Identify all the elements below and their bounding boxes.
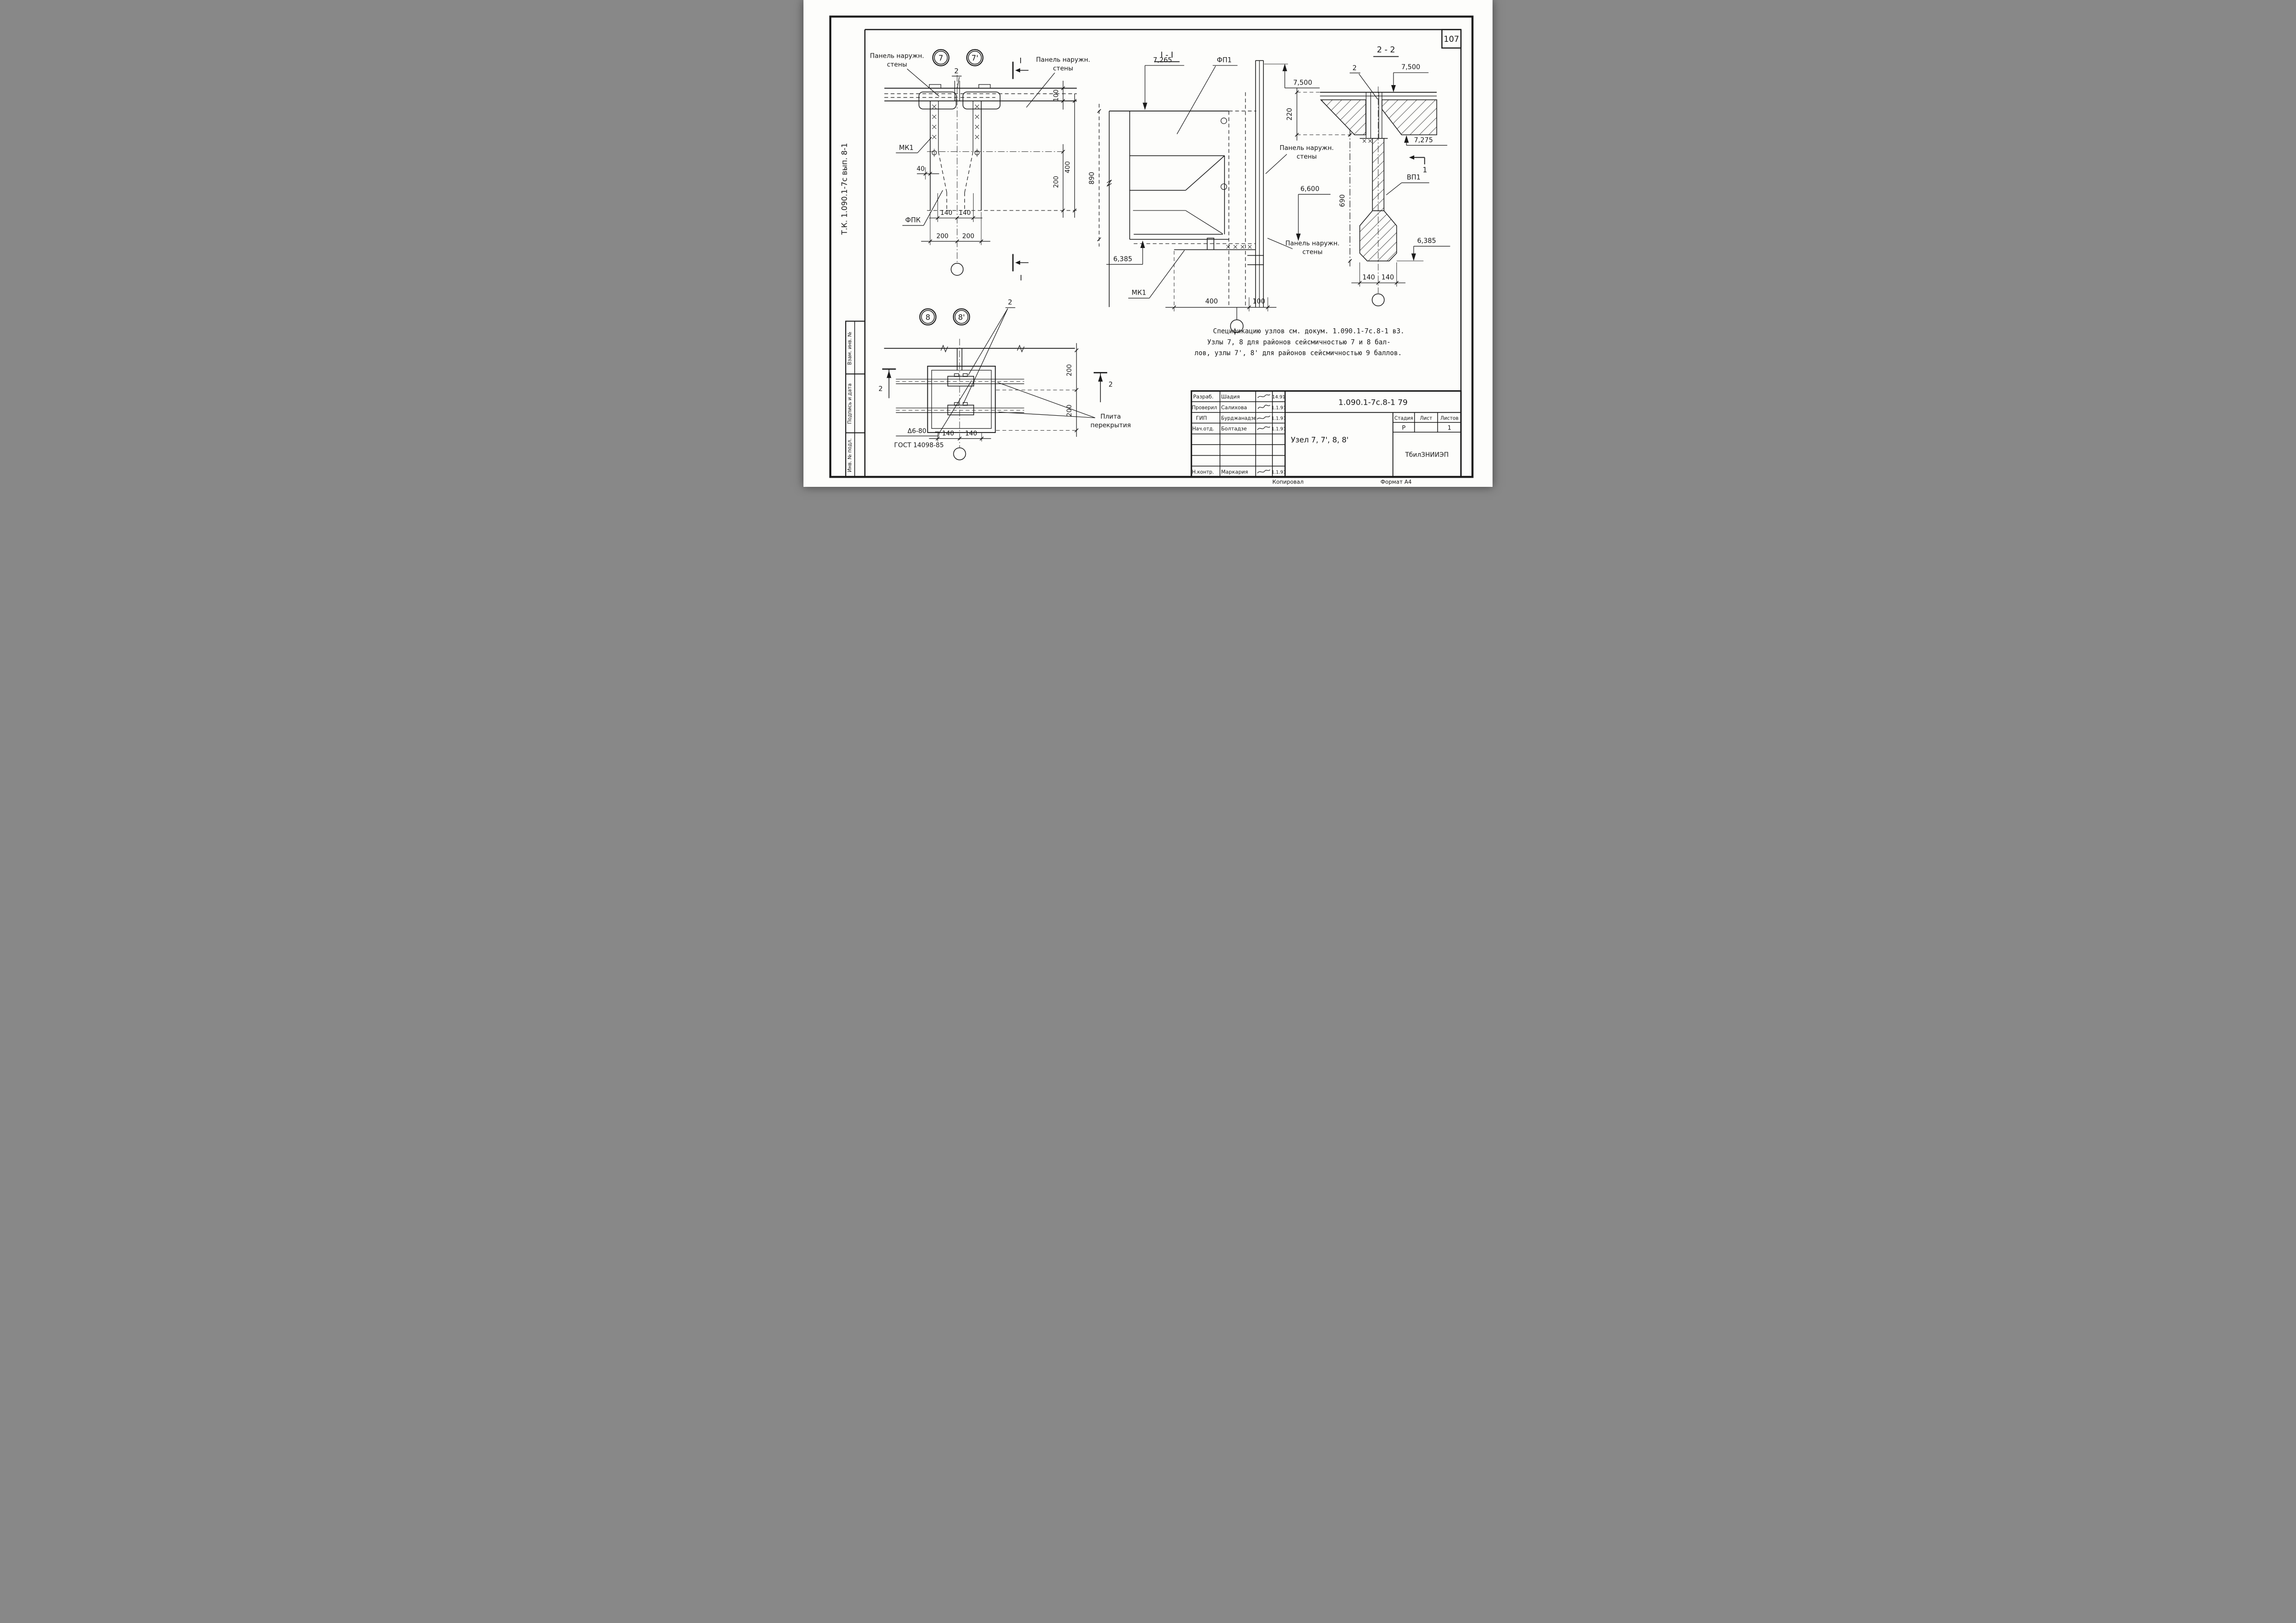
row3-name: Бурджанадзе [1221,416,1257,421]
row5-role: Н.контр. [1192,470,1214,475]
stage-value: Р [1402,424,1406,431]
panel-upper-2: стены [1296,153,1317,161]
concrete-slab-left [1321,100,1366,135]
dim-200-bottom: 200 [1066,405,1074,417]
elev-6385: 6,385 [1113,256,1132,263]
row1-role: Разраб. [1193,394,1213,400]
panel-label-left-1: Панель наружн. [870,53,924,60]
row4-role: Нач.отд. [1192,427,1214,432]
bubble-7: 7 [938,54,943,62]
section-mark-1: 1 [1422,166,1427,174]
node8-plan-drawing: 8 8' 2 [878,299,1131,460]
slab-label-2: перекрытия [1090,422,1131,429]
elev-7265: 7,265 [1153,57,1172,64]
signature [1258,405,1270,409]
album-code: Т.К. 1.090.1-7с вып. 8-1 [840,143,849,235]
dim-140-b: 140 [1382,273,1394,281]
row2-date: 1.1.91 [1271,405,1286,410]
mortar-hatch-right [975,105,979,139]
dim-400: 400 [1064,161,1072,173]
section-mark-I-top: I [1020,56,1022,65]
section-2-2-title: 2 - 2 [1377,45,1395,54]
margin-label-vzam: Взам. инв. № [847,332,852,365]
panel-label-left-2: стены [887,62,907,69]
object-title: Узел 7, 7', 8, 8' [1291,435,1348,444]
concrete-slab-right [1382,100,1437,135]
callout-2: 2 [1008,299,1012,307]
weld-gost: ГОСТ 14098-85 [894,442,944,449]
row4-name: Болтадзе [1221,426,1247,432]
section-mark-2-right: 2 [1109,381,1113,389]
callout-2: 2 [954,67,959,75]
fp1-label: ФП1 [1217,57,1232,64]
mk1-label: МК1 [1132,289,1146,297]
dim-140-a: 140 [940,210,952,217]
title-block: Разраб. Шадия 14.91 Проверил Салихова 1.… [1191,391,1461,477]
row2-name: Салихова [1221,404,1247,410]
doc-number: 1.090.1-7с.8-1 79 [1338,397,1407,407]
bubble-7p: 7' [972,54,978,62]
row2-role: Проверил [1192,405,1217,410]
margin-label-inv: Инв. № подл. [847,438,852,472]
sheets-value: 1 [1447,424,1451,431]
note-line-1: Спецификацию узлов см. докум. 1.090.1-7с… [1213,328,1404,335]
signature [1258,395,1270,398]
joint-hatch [1226,245,1251,248]
dim-140-b: 140 [965,430,977,437]
blueprint-canvas: 107 Т.К. 1.090.1-7с вып. 8-1 Взам. инв. … [803,0,1493,487]
elev-7500: 7,500 [1401,63,1420,71]
institute-name: ТбилЗНИИЭП [1405,451,1448,458]
panel-label-right-2: стены [1053,65,1073,72]
tie-bars-top [896,374,1024,386]
panel-lower-2: стены [1302,249,1322,256]
elev-7500: 7,500 [1293,79,1312,87]
note-line-2: Узлы 7, 8 для районов сейсмичностью 7 и … [1207,338,1391,346]
reference-bubble [951,263,963,275]
specification-note: Спецификацию узлов см. докум. 1.090.1-7с… [1195,328,1405,358]
footer-copied: Копировал [1272,479,1304,485]
fpk-label: ФПК [905,217,921,224]
dim-200-b: 200 [962,233,974,240]
section-mark-2-left: 2 [878,385,883,393]
row1-name: Шадия [1221,394,1240,400]
row3-role: ГИП [1196,415,1207,421]
bubble-8p: 8' [958,313,965,322]
panel-lower-1: Панель наружн. [1285,240,1340,248]
row1-date: 14.91 [1272,395,1285,400]
signature [1257,416,1270,419]
weld-mark: Δ6-80 [908,428,926,435]
row4-date: 1.1.91 [1271,427,1286,432]
signature [1258,427,1270,430]
dim-890: 890 [1088,172,1096,185]
mk1-label: МК1 [899,144,913,152]
vp1-label: ВП1 [1407,174,1421,182]
margin-stamp: Взам. инв. № Подпись и дата Инв. № подл. [846,321,865,477]
node7-plan-drawing: 7 7' [870,50,1090,283]
dim-200-right: 200 [1053,176,1060,188]
dim-220: 220 [1286,108,1294,120]
row5-name: Маркария [1221,469,1248,475]
mortar-hatch-left [932,105,936,139]
elev-6385: 6,385 [1417,237,1436,245]
section-mark-I-bottom: I [1020,274,1022,283]
reference-bubble [1372,294,1384,306]
dim-690: 690 [1339,194,1346,207]
dim-40: 40 [917,166,925,173]
stage-label: Стадия [1395,416,1413,421]
sheet-label: Лист [1420,416,1432,421]
reference-bubble [953,448,965,460]
bubble-8: 8 [926,313,930,322]
elev-7275: 7,275 [1414,136,1433,144]
slab-label-1: Плита [1100,413,1121,421]
dim-100: 100 [1253,298,1265,306]
dim-400: 400 [1205,298,1218,306]
panel-upper-1: Панель наружн. [1280,145,1334,152]
dim-200-a: 200 [937,233,949,240]
row5-date: 1.1.91 [1271,470,1286,475]
dim-100: 100 [1053,89,1060,101]
section-I-I-drawing: I - I 7,2 [1088,50,1340,333]
dim-200-top: 200 [1066,364,1074,376]
panel-label-right-1: Панель наружн. [1036,56,1090,63]
dim-140-b: 140 [959,210,971,217]
drawing-sheet: 107 Т.К. 1.090.1-7с вып. 8-1 Взам. инв. … [803,0,1493,487]
note-line-3: лов, узлы 7', 8' для районов сейсмичност… [1195,349,1402,357]
dim-140-a: 140 [942,430,954,437]
margin-label-podpis: Подпись и дата [847,384,852,424]
callout-2: 2 [1352,64,1357,72]
dim-140-a: 140 [1362,273,1375,281]
page-number: 107 [1444,34,1459,44]
row3-date: 1.1.91 [1271,416,1286,421]
elev-6600: 6,600 [1300,186,1319,193]
footer-format: Формат А4 [1381,479,1412,485]
signature [1258,470,1270,473]
tie-bars-bottom [896,403,1024,415]
sheets-label: Листов [1440,416,1458,421]
